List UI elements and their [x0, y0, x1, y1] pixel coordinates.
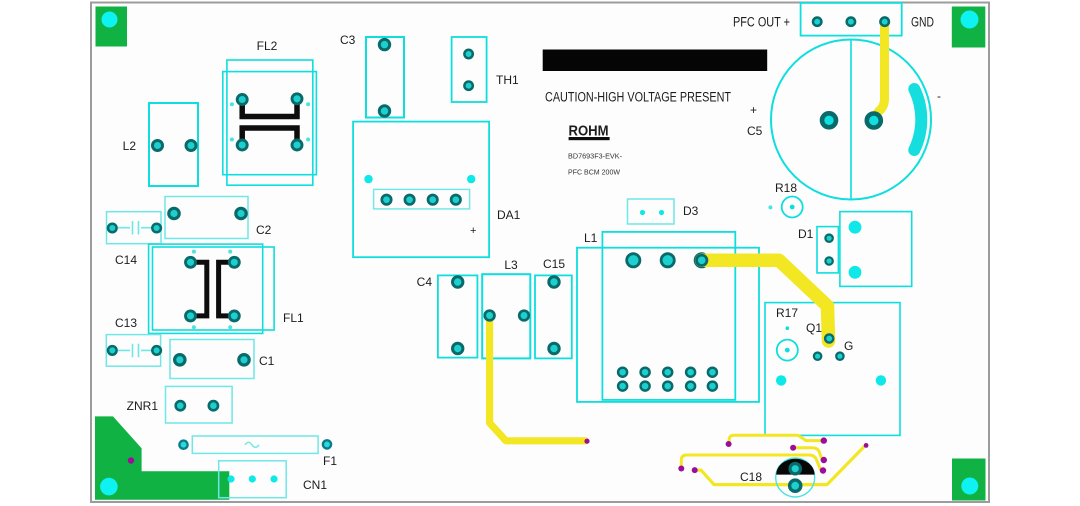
svg-text:ZNR1: ZNR1: [127, 399, 159, 413]
svg-text:Q1: Q1: [806, 321, 822, 335]
svg-text:BD7693F3-EVK-: BD7693F3-EVK-: [568, 154, 623, 161]
svg-text:C1: C1: [259, 354, 275, 368]
svg-text:L3: L3: [504, 258, 518, 272]
svg-text:FL1: FL1: [283, 311, 304, 325]
svg-text:D3: D3: [683, 204, 699, 218]
svg-text:C13: C13: [115, 316, 137, 330]
svg-text:D1: D1: [798, 227, 814, 241]
svg-text:C4: C4: [417, 275, 433, 289]
svg-text:-: -: [937, 89, 941, 103]
svg-text:PFC OUT +: PFC OUT +: [733, 15, 790, 30]
svg-text:C2: C2: [256, 223, 272, 237]
svg-text:+: +: [470, 225, 476, 237]
svg-text:+: +: [750, 103, 757, 117]
svg-text:GND: GND: [911, 15, 934, 30]
svg-text:R17: R17: [776, 306, 798, 320]
svg-text:C15: C15: [543, 257, 565, 271]
svg-text:L2: L2: [123, 139, 137, 153]
svg-text:C14: C14: [115, 253, 137, 267]
svg-text:DA1: DA1: [497, 208, 521, 222]
svg-text:C3: C3: [340, 33, 356, 47]
svg-text:C5: C5: [747, 124, 763, 138]
svg-text:L1: L1: [584, 231, 598, 245]
svg-text:CAUTION-HIGH VOLTAGE PRESENT: CAUTION-HIGH VOLTAGE PRESENT: [545, 90, 731, 105]
svg-text:PFC BCM 200W: PFC BCM 200W: [568, 170, 620, 177]
svg-text:TH1: TH1: [496, 73, 519, 87]
svg-text:R18: R18: [775, 181, 797, 195]
svg-text:G: G: [844, 339, 853, 353]
svg-text:F1: F1: [323, 454, 337, 468]
svg-text:FL2: FL2: [257, 39, 278, 53]
svg-text:C18: C18: [740, 470, 762, 484]
svg-text:CN1: CN1: [303, 478, 327, 492]
